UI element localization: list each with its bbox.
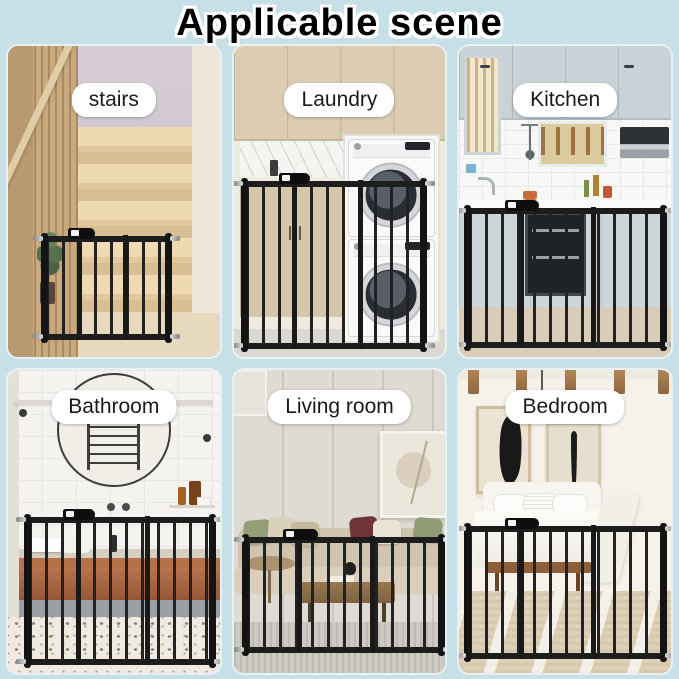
- gate-bars: [247, 542, 440, 650]
- gate-bottom-rail: [42, 334, 171, 340]
- gate-right-post: [209, 514, 216, 668]
- pressure-mount: [234, 343, 243, 348]
- cooking-pot: [523, 191, 537, 200]
- room-label-bedroom: Bedroom: [506, 390, 625, 424]
- jar: [603, 186, 612, 198]
- gate-right-post: [660, 205, 667, 351]
- gate-left-post: [464, 205, 471, 351]
- cabinet-handle: [624, 65, 634, 68]
- gate-left-post: [24, 514, 31, 668]
- pressure-mount: [234, 537, 244, 542]
- pressure-mount: [459, 342, 465, 347]
- pressure-mount: [443, 537, 445, 542]
- display: [405, 142, 430, 150]
- wall-hook: [203, 434, 211, 442]
- pressure-mount: [665, 342, 671, 347]
- pressure-mount: [459, 526, 465, 531]
- latch-indicator: [71, 230, 79, 236]
- gate-door-post: [145, 516, 150, 665]
- gate-door-post: [77, 235, 82, 340]
- pressure-mount: [170, 334, 180, 339]
- gate-top-rail: [243, 537, 444, 543]
- art-shape: [495, 413, 526, 485]
- gate-bars: [469, 213, 662, 344]
- pressure-mount: [459, 653, 465, 658]
- latch-indicator: [66, 511, 74, 517]
- gate-bottom-rail: [465, 342, 666, 348]
- gate-top-rail: [465, 208, 666, 214]
- oil-bottle: [584, 180, 589, 197]
- room-label-living-room: Living room: [268, 390, 411, 424]
- diffuser-bottle: [270, 160, 278, 176]
- gate-latch-handle: [68, 228, 95, 239]
- gate-door-post: [519, 207, 524, 348]
- gate-bottom-rail: [243, 647, 444, 653]
- gate-latch-handle: [279, 173, 310, 184]
- gate-top-rail: [242, 181, 426, 187]
- gate-door-post: [519, 525, 524, 659]
- safety-gate: [465, 526, 666, 659]
- room-label-kitchen: Kitchen: [513, 83, 617, 117]
- gate-latch-handle: [283, 529, 317, 540]
- latch-indicator: [282, 175, 290, 181]
- pressure-mount: [665, 208, 671, 213]
- gate-right-post: [165, 233, 172, 343]
- gate-latch-handle: [63, 509, 95, 520]
- gate-bottom-rail: [25, 659, 216, 665]
- gate-door-post: [591, 525, 596, 659]
- gate-left-post: [242, 534, 249, 657]
- pressure-mount: [443, 647, 445, 652]
- product-scene-collage: { "title": "Applicable scene", "panels":…: [0, 0, 679, 679]
- pressure-mount: [425, 343, 435, 348]
- gate-top-rail: [42, 236, 171, 242]
- gate-bars: [29, 522, 212, 661]
- pressure-mount: [214, 659, 219, 664]
- page-title: Applicable scene: [0, 0, 679, 46]
- panel-stairs: stairs: [8, 46, 220, 357]
- gate-right-post: [660, 523, 667, 662]
- gate-right-post: [420, 178, 427, 352]
- gate-top-rail: [25, 517, 216, 523]
- gate-door-post: [358, 180, 363, 349]
- gate-left-post: [41, 233, 48, 343]
- wood-panel: [8, 46, 33, 357]
- gate-door-post: [370, 536, 375, 654]
- pressure-mount: [170, 236, 180, 241]
- latch-indicator: [508, 202, 516, 208]
- pressure-mount: [665, 526, 671, 531]
- gate-left-post: [464, 523, 471, 662]
- gate-bottom-rail: [242, 343, 426, 349]
- panel-laundry: Laundry: [234, 46, 446, 357]
- glass-cabinet: [464, 55, 502, 154]
- pressure-mount: [16, 517, 26, 522]
- bottle-shelf: [538, 121, 608, 167]
- pressure-mount: [214, 517, 219, 522]
- gate-bars: [246, 186, 422, 345]
- room-label-bathroom: Bathroom: [51, 390, 176, 424]
- gate-door-post: [123, 235, 128, 340]
- gate-bars: [46, 241, 167, 336]
- gate-latch-handle: [505, 518, 539, 529]
- blue-cup: [466, 164, 476, 173]
- safety-gate: [243, 537, 444, 654]
- panel-kitchen: Kitchen: [459, 46, 671, 357]
- gate-right-post: [438, 534, 445, 657]
- soap-bottle: [178, 487, 186, 505]
- wall-art: [380, 431, 445, 519]
- range-hood: [620, 127, 669, 158]
- gate-top-rail: [465, 526, 666, 532]
- latch-indicator: [286, 531, 294, 537]
- panel-living-room: Living room: [234, 370, 446, 673]
- pressure-mount: [33, 236, 43, 241]
- gate-latch-handle: [505, 200, 539, 211]
- latch-indicator: [508, 520, 516, 526]
- scene-grid: stairs: [0, 46, 679, 673]
- pressure-mount: [16, 659, 26, 664]
- pressure-mount: [33, 334, 43, 339]
- gate-bars: [469, 531, 662, 655]
- ceiling-beam: [468, 370, 479, 394]
- gate-bottom-rail: [465, 653, 666, 659]
- gate-door-post: [292, 180, 297, 349]
- gate-door-post: [297, 536, 302, 654]
- safety-gate: [465, 208, 666, 348]
- ceiling-beam: [658, 370, 669, 394]
- safety-gate: [42, 236, 171, 340]
- soap-bar: [197, 497, 211, 506]
- room-label-laundry: Laundry: [285, 83, 395, 117]
- stairs-right-wall: [192, 46, 220, 357]
- gate-left-post: [241, 178, 248, 352]
- pressure-mount: [425, 181, 435, 186]
- cabinet-handle: [480, 65, 490, 68]
- gate-door-post: [76, 516, 81, 665]
- panel-bedroom: Bedroom: [459, 370, 671, 673]
- pressure-mount: [234, 181, 243, 186]
- oil-bottle: [593, 175, 599, 196]
- pressure-mount: [234, 647, 244, 652]
- pressure-mount: [459, 208, 465, 213]
- safety-gate: [242, 181, 426, 349]
- wall-art: [234, 370, 268, 416]
- room-label-stairs: stairs: [72, 83, 156, 117]
- panel-bathroom: Bathroom: [8, 370, 220, 673]
- safety-gate: [25, 517, 216, 665]
- hanging-utensils: [521, 124, 538, 160]
- gate-door-post: [591, 207, 596, 348]
- wall-hook: [19, 409, 27, 417]
- pressure-mount: [665, 653, 671, 658]
